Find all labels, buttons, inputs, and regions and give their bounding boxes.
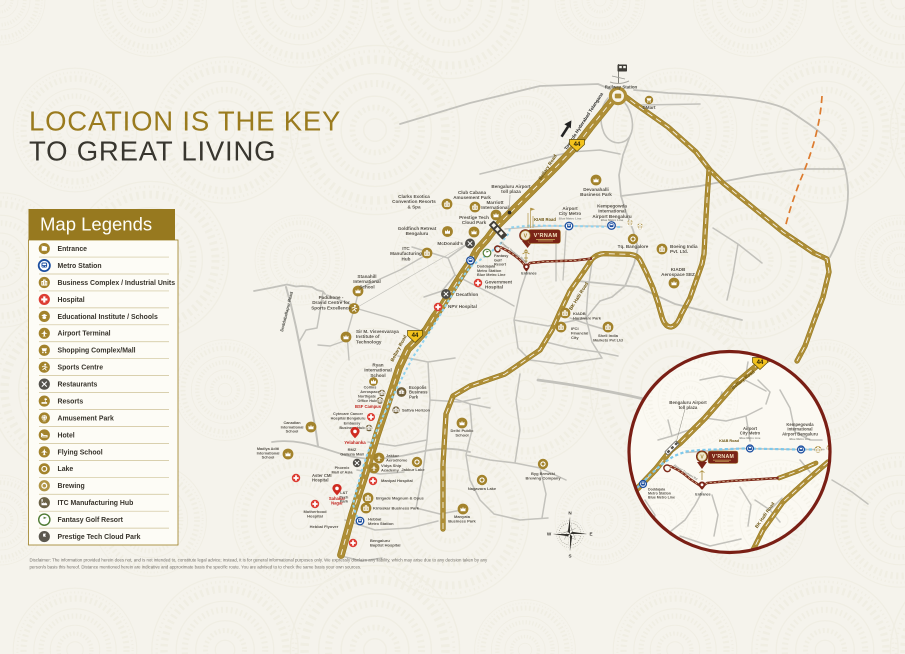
svg-text:Tq. Bangalore: Tq. Bangalore [618, 244, 649, 249]
svg-text:Blue Metro Line: Blue Metro Line [740, 436, 761, 440]
svg-text:Map Legends: Map Legends [40, 214, 152, 235]
svg-text:LOCATION IS THE KEY: LOCATION IS THE KEY [29, 106, 341, 137]
svg-text:Cytecare CancerHospital Bengal: Cytecare CancerHospital Bengaluru [331, 412, 366, 420]
svg-text:Railway Station: Railway Station [605, 85, 638, 90]
svg-text:Hospital: Hospital [58, 297, 85, 304]
svg-text:Club CabanaAmusement Park: Club CabanaAmusement Park [453, 190, 491, 200]
svg-text:L&TTechPark: L&TTechPark [340, 491, 349, 504]
svg-text:Hotel: Hotel [58, 432, 75, 439]
svg-text:NPV Hospital: NPV Hospital [448, 304, 477, 309]
svg-text:Airport Terminal: Airport Terminal [58, 331, 111, 338]
svg-text:person/s basis this hereof. Di: person/s basis this hereof. Distance men… [30, 565, 362, 570]
svg-text:Metro Station: Metro Station [58, 263, 102, 270]
svg-text:Sports Centre: Sports Centre [58, 365, 104, 372]
svg-text:Brigade Magnum & Opus: Brigade Magnum & Opus [376, 496, 425, 501]
svg-text:BSF Campus: BSF Campus [355, 404, 382, 409]
svg-text:KIAB Road: KIAB Road [534, 217, 556, 222]
svg-text:Jakkur Lake: Jakkur Lake [401, 467, 425, 472]
svg-text:44: 44 [574, 142, 581, 148]
svg-text:Vidya ShipAcademy: Vidya ShipAcademy [381, 463, 402, 473]
svg-text:TO GREAT LIVING: TO GREAT LIVING [29, 136, 276, 167]
svg-text:Resorts: Resorts [58, 398, 84, 405]
svg-text:Manipal Hospital: Manipal Hospital [381, 478, 413, 483]
svg-text:Educational Institute / School: Educational Institute / Schools [58, 314, 158, 321]
svg-text:Yelahanka: Yelahanka [344, 440, 366, 445]
svg-text:W: W [547, 532, 552, 537]
svg-text:Lake: Lake [58, 466, 74, 473]
svg-text:KIAB Road: KIAB Road [719, 439, 740, 443]
svg-text:Prestige TechCloud Park: Prestige TechCloud Park [459, 215, 489, 225]
svg-text:Amusement Park: Amusement Park [58, 415, 114, 422]
svg-text:Restaurants: Restaurants [58, 382, 98, 389]
svg-text:Blue Metro Line: Blue Metro Line [790, 437, 811, 441]
svg-text:Entrance: Entrance [695, 493, 710, 497]
svg-text:Fantasy Golf Resort: Fantasy Golf Resort [58, 517, 124, 524]
svg-text:Shopping Complex/Mall: Shopping Complex/Mall [58, 348, 136, 355]
svg-text:S: S [568, 554, 571, 559]
svg-text:Entrance: Entrance [521, 272, 536, 276]
svg-text:44: 44 [757, 360, 764, 366]
svg-text:NorthgateOffice Hub: NorthgateOffice Hub [357, 395, 377, 403]
svg-text:DMart: DMart [642, 105, 655, 110]
svg-text:Flying School: Flying School [58, 449, 103, 456]
svg-text:Blue Metro Line: Blue Metro Line [559, 217, 582, 221]
svg-text:V: V [524, 234, 528, 240]
svg-text:Business Complex / Industrial: Business Complex / Industrial Units [58, 280, 176, 287]
svg-text:V’RNAM: V’RNAM [534, 233, 558, 239]
svg-text:ITC Manufacturing Hub: ITC Manufacturing Hub [58, 500, 134, 507]
svg-text:Brewing: Brewing [58, 483, 85, 490]
svg-text:Disclaimer: The information pr: Disclaimer: The information provided her… [30, 558, 489, 563]
svg-text:44: 44 [412, 333, 419, 339]
svg-text:Decathlon: Decathlon [456, 292, 478, 297]
svg-text:Nagavara Lake: Nagavara Lake [468, 486, 497, 491]
svg-text:Kirloskar Business Park: Kirloskar Business Park [373, 506, 420, 511]
svg-text:E: E [589, 532, 592, 537]
svg-text:Entrance: Entrance [58, 246, 88, 253]
svg-text:Sattva Horizon: Sattva Horizon [402, 408, 431, 413]
svg-text:V’RNAM: V’RNAM [712, 454, 734, 460]
svg-text:DevanahalliBusiness Park: DevanahalliBusiness Park [580, 187, 612, 197]
svg-text:Prestige Tech Cloud Park: Prestige Tech Cloud Park [58, 534, 141, 541]
svg-text:Hebbal Flyover: Hebbal Flyover [310, 524, 339, 529]
svg-text:McDonald's: McDonald's [437, 241, 463, 246]
